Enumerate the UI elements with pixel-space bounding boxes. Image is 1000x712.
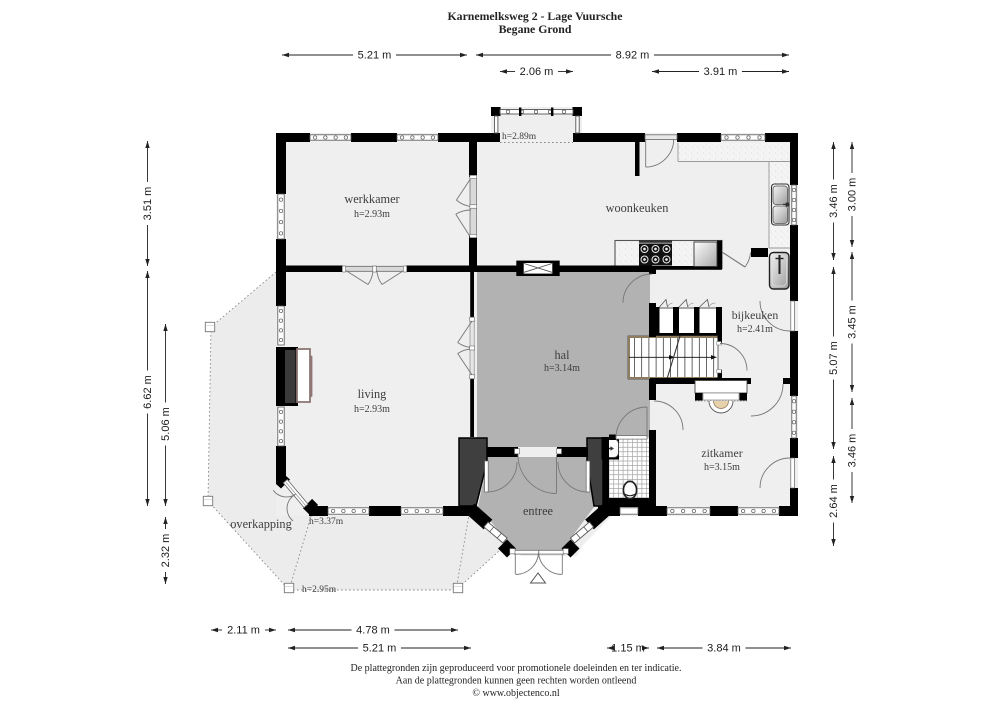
svg-text:8.92 m: 8.92 m <box>616 50 650 62</box>
svg-text:6.62 m: 6.62 m <box>142 375 154 409</box>
svg-text:zitkamer: zitkamer <box>701 446 742 460</box>
svg-text:5.21 m: 5.21 m <box>358 50 392 62</box>
svg-text:4.78 m: 4.78 m <box>356 625 390 637</box>
svg-text:3.00 m: 3.00 m <box>847 178 859 212</box>
svg-text:1.15 m: 1.15 m <box>611 643 645 655</box>
svg-text:h=2.95m: h=2.95m <box>302 585 337 595</box>
svg-text:3.46 m: 3.46 m <box>847 434 859 468</box>
svg-text:5.21 m: 5.21 m <box>363 643 397 655</box>
svg-text:Begane Grond: Begane Grond <box>499 22 572 36</box>
svg-text:2.06 m: 2.06 m <box>520 66 554 78</box>
svg-text:h=2.41m: h=2.41m <box>737 324 773 335</box>
svg-text:woonkeuken: woonkeuken <box>606 201 669 215</box>
svg-text:3.91 m: 3.91 m <box>704 66 738 78</box>
svg-text:3.46 m: 3.46 m <box>828 184 840 218</box>
svg-text:overkapping: overkapping <box>230 517 291 531</box>
svg-text:5.07 m: 5.07 m <box>828 341 840 375</box>
svg-text:3.84 m: 3.84 m <box>707 643 741 655</box>
svg-text:3.51 m: 3.51 m <box>142 187 154 221</box>
svg-text:2.64 m: 2.64 m <box>828 484 840 518</box>
svg-text:2.11 m: 2.11 m <box>227 625 260 637</box>
svg-text:h=3.37m: h=3.37m <box>309 517 344 527</box>
svg-text:Karnemelksweg 2 - Lage Vuursch: Karnemelksweg 2 - Lage Vuursche <box>448 9 623 23</box>
svg-text:5.06 m: 5.06 m <box>160 407 172 441</box>
svg-text:© www.objectenco.nl: © www.objectenco.nl <box>472 688 559 699</box>
svg-text:h=3.14m: h=3.14m <box>544 363 580 374</box>
svg-text:Aan de plattegronden kunnen ge: Aan de plattegronden kunnen geen rechten… <box>396 676 637 687</box>
svg-text:3.45 m: 3.45 m <box>847 305 859 339</box>
svg-text:living: living <box>358 387 387 401</box>
svg-text:h=2.89m: h=2.89m <box>502 132 537 142</box>
svg-text:werkkamer: werkkamer <box>344 192 399 206</box>
svg-text:h=2.93m: h=2.93m <box>354 404 390 415</box>
svg-text:h=2.93m: h=2.93m <box>354 209 390 220</box>
svg-text:h=3.15m: h=3.15m <box>704 462 740 473</box>
svg-text:entree: entree <box>523 504 554 518</box>
svg-text:bijkeuken: bijkeuken <box>732 308 779 322</box>
svg-text:hal: hal <box>554 348 570 362</box>
svg-text:De plattegronden zijn geproduc: De plattegronden zijn geproduceerd voor … <box>351 663 682 674</box>
svg-text:2.32 m: 2.32 m <box>160 534 172 568</box>
